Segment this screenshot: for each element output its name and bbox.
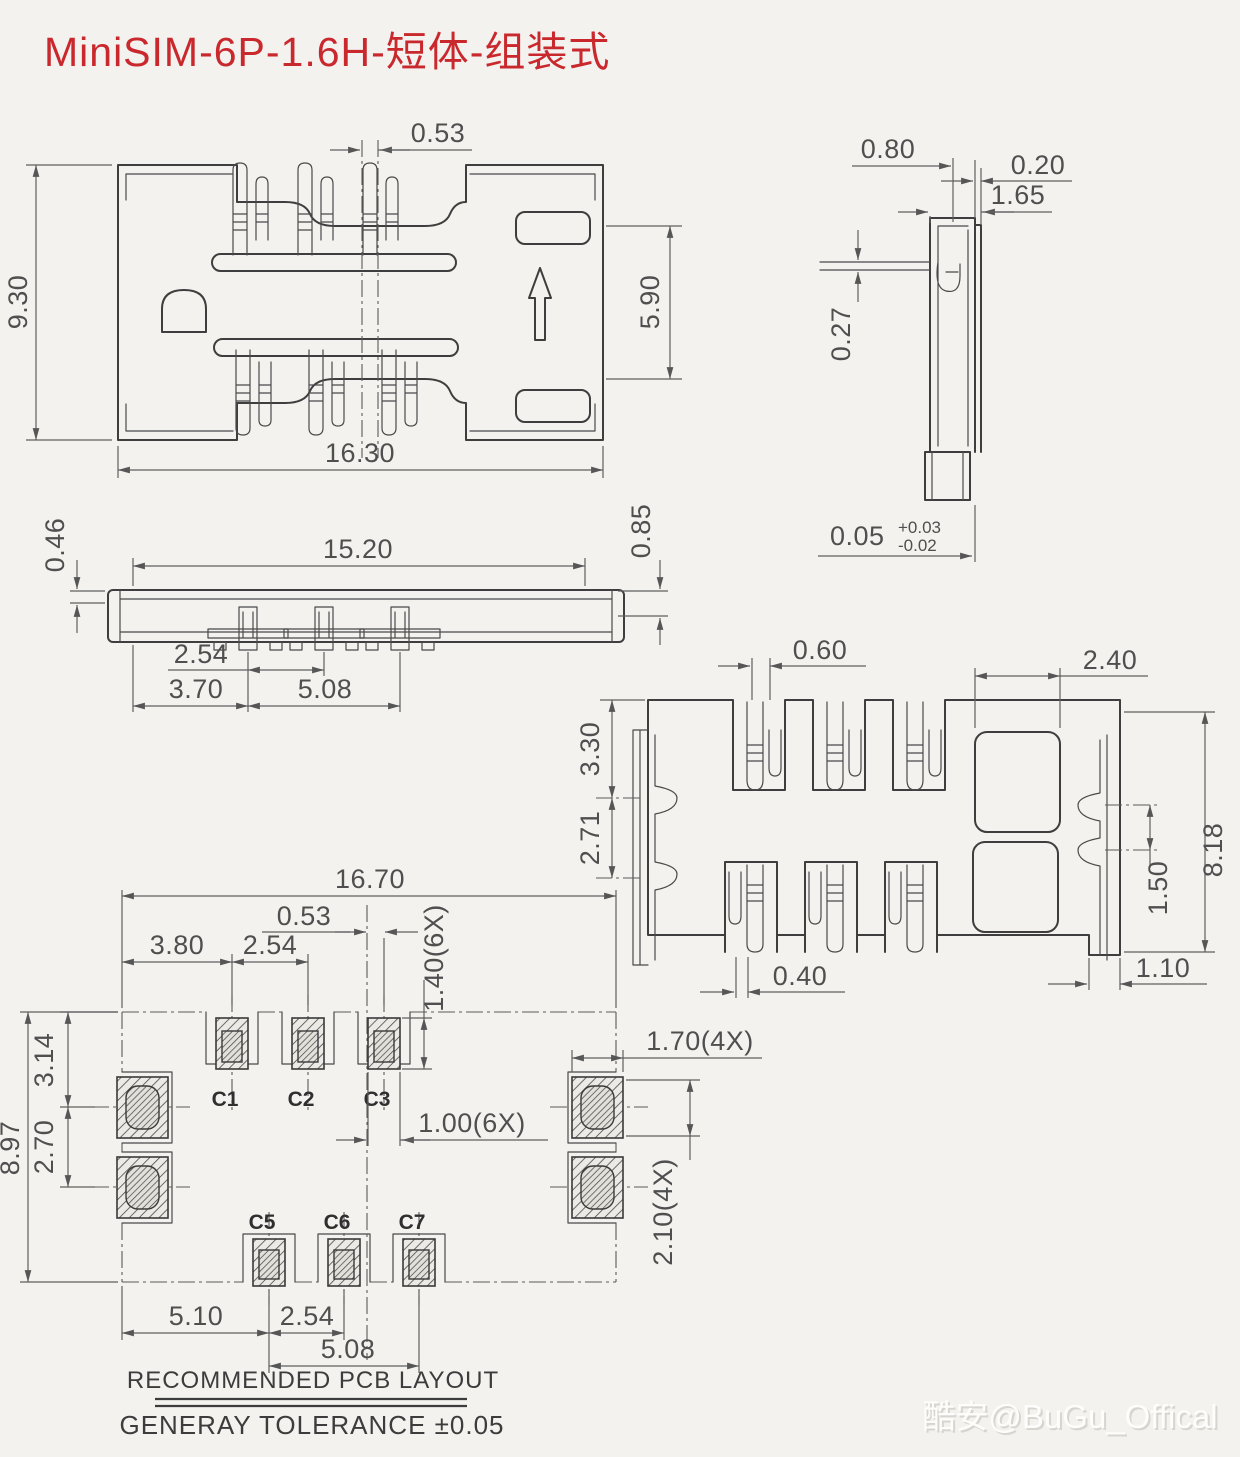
dim-top-center-offset: 0.53	[411, 118, 466, 148]
dim-pcb-side-pad-height: 2.10(4X)	[648, 1158, 678, 1266]
dim-pcb-side-pad-width: 1.70(4X)	[646, 1026, 754, 1056]
pcb-layout: C1 C2 C3 C5 C6 C7 16.70 0.53 3.80 2.54 1…	[0, 864, 762, 1373]
dim-bottom-pin-tail: 0.40	[773, 961, 828, 991]
card-window-top	[975, 732, 1060, 832]
dim-pcb-edge-to-side-pad: 3.14	[29, 1033, 59, 1088]
dim-bottom-window-width: 2.40	[1083, 645, 1138, 675]
dim-front-pin-span: 5.08	[298, 674, 353, 704]
front-view: 0.46 15.20 0.85 2.54 3.70 5.08	[40, 504, 668, 712]
pad-label-c7: C7	[399, 1211, 426, 1234]
dim-pcb-center-offset: 0.53	[277, 901, 332, 931]
dim-side-tab-width: 0.80	[861, 134, 916, 164]
bottom-contact-pins	[236, 350, 417, 435]
dim-top-body-height: 9.30	[3, 275, 33, 330]
dim-pcb-pad-pitch-top: 2.54	[243, 930, 298, 960]
latch-window-top	[516, 212, 590, 244]
bottom-view-top-pins	[747, 702, 941, 790]
dim-pcb-edge-to-first-pad: 5.10	[169, 1301, 224, 1331]
pcb-layout-note: RECOMMENDED PCB LAYOUT	[127, 1367, 499, 1394]
dim-pcb-side-pad-pitch: 2.70	[29, 1120, 59, 1175]
pad-label-c6: C6	[324, 1211, 351, 1234]
pad-label-c2: C2	[288, 1088, 315, 1111]
dim-bottom-edge-to-bump: 3.30	[575, 722, 605, 777]
dim-front-edge-to-pin: 3.70	[169, 674, 224, 704]
dim-front-width: 15.20	[323, 534, 393, 564]
pad-label-c5: C5	[249, 1211, 276, 1234]
drawing-title: MiniSIM-6P-1.6H-短体-组装式	[44, 29, 610, 75]
dim-front-height: 0.85	[626, 504, 656, 559]
dim-bottom-side-rail: 1.10	[1136, 953, 1191, 983]
dim-pcb-pad-width: 1.00(6X)	[418, 1108, 526, 1138]
footer-notes: RECOMMENDED PCB LAYOUT GENERAY TOLERANCE…	[119, 1367, 504, 1440]
dim-front-pin-pitch: 2.54	[174, 639, 229, 669]
dim-side-standoff-tol-minus: -0.02	[898, 536, 937, 555]
dim-pcb-pad-height: 1.40(6X)	[419, 904, 449, 1012]
tolerance-note: GENERAY TOLERANCE ±0.05	[119, 1410, 504, 1440]
dim-pcb-pad-pitch-bottom: 2.54	[280, 1301, 335, 1331]
dim-pcb-pad-span-bottom: 5.08	[321, 1334, 376, 1364]
insert-direction-arrow-icon	[529, 268, 551, 340]
latch-window-bottom	[516, 390, 590, 422]
dim-pcb-total-width: 16.70	[335, 864, 405, 894]
polarity-mark	[162, 290, 206, 332]
side-view: 0.80 0.20 1.65 0.27 0.05 +0.03 -0.02	[818, 134, 1072, 562]
drawing-sheet: MiniSIM-6P-1.6H-短体-组装式 0.53	[0, 0, 1240, 1457]
card-window-bottom	[973, 842, 1058, 932]
watermark-text: 酷安@BuGu_Offical	[922, 1398, 1217, 1435]
top-contact-pins	[233, 163, 398, 255]
dim-front-cover: 0.46	[40, 518, 70, 573]
dim-side-depth: 1.65	[991, 180, 1046, 210]
dim-bottom-bump-pitch: 2.71	[575, 811, 605, 866]
front-pins	[208, 607, 440, 650]
dim-top-body-width: 16.30	[325, 438, 395, 468]
cad-drawing: MiniSIM-6P-1.6H-短体-组装式 0.53	[0, 0, 1240, 1457]
pad-label-c1: C1	[212, 1088, 239, 1111]
dim-side-lead-thickness: 0.27	[826, 307, 856, 362]
dim-bottom-height: 8.18	[1198, 823, 1228, 878]
dim-side-standoff: 0.05	[830, 521, 885, 551]
cover-slot-1	[212, 254, 456, 271]
top-view: 0.53 9.30 16.30 5.90	[3, 118, 682, 478]
dim-pcb-total-height: 8.97	[0, 1121, 25, 1176]
dim-bottom-bump-span: 1.50	[1143, 861, 1173, 916]
dim-bottom-pin-offset: 0.60	[793, 635, 848, 665]
watermark: 酷安@BuGu_Offical 酷安@BuGu_Offical	[922, 1398, 1219, 1437]
bottom-view-bottom-pins	[729, 865, 923, 952]
dim-pcb-edge-to-pad: 3.80	[150, 930, 205, 960]
bottom-view: 0.60 2.40 3.30 2.71 1.50 8.18 0.40 1.10	[575, 635, 1228, 998]
dim-side-wall: 0.20	[1011, 150, 1066, 180]
dim-top-opening-height: 5.90	[635, 275, 665, 330]
dim-side-standoff-tol-plus: +0.03	[898, 518, 941, 537]
